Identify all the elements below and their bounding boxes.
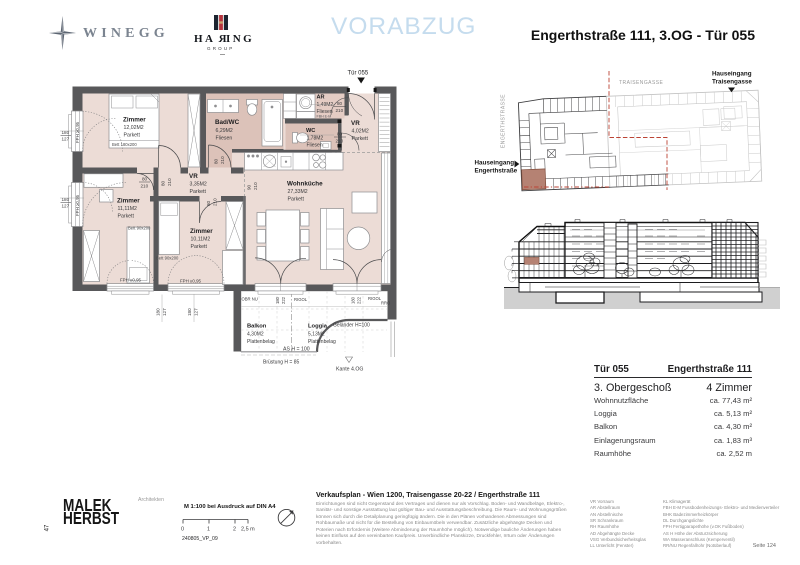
svg-text:222: 222 (357, 296, 362, 304)
svg-text:80: 80 (161, 180, 166, 186)
svg-text:Wohnküche: Wohnküche (287, 181, 323, 188)
svg-text:Engerthstraße: Engerthstraße (475, 168, 518, 175)
svg-text:6,29M2: 6,29M2 (216, 128, 233, 134)
svg-text:VR: VR (189, 173, 198, 180)
svg-text:Parkett: Parkett (124, 133, 141, 139)
svg-text:2: 2 (233, 527, 236, 533)
svg-text:Loggia: Loggia (308, 324, 328, 330)
svg-text:Parkett: Parkett (191, 244, 208, 250)
svg-text:180: 180 (187, 308, 192, 316)
svg-text:180: 180 (62, 197, 70, 202)
svg-text:127: 127 (62, 137, 70, 142)
svg-text:Balkon: Balkon (247, 324, 267, 330)
svg-text:TRAISENGASSE: TRAISENGASSE (619, 80, 664, 86)
svg-text:1: 1 (207, 527, 210, 533)
svg-text:FPH ≥0,95: FPH ≥0,95 (75, 194, 80, 216)
svg-text:Bett 90x200: Bett 90x200 (156, 256, 179, 261)
svg-text:10,11M2: 10,11M2 (191, 237, 211, 243)
svg-text:ENGERTHSTRASSE: ENGERTHSTRASSE (501, 94, 507, 148)
svg-text:210: 210 (220, 156, 225, 164)
svg-text:210: 210 (336, 139, 344, 144)
svg-text:Brüstung H = 85: Brüstung H = 85 (263, 360, 299, 366)
svg-text:Fliesen: Fliesen (307, 143, 323, 149)
svg-text:Fliesen: Fliesen (216, 136, 233, 142)
svg-text:FBH E-M: FBH E-M (317, 114, 332, 118)
svg-text:Bad/WC: Bad/WC (215, 119, 240, 126)
svg-text:RIGOL: RIGOL (368, 296, 382, 301)
svg-text:Parkett: Parkett (352, 136, 369, 142)
svg-text:Parkett: Parkett (190, 189, 207, 195)
svg-text:4,30M2: 4,30M2 (247, 332, 264, 338)
svg-text:0: 0 (181, 527, 184, 533)
svg-text:4,02M2: 4,02M2 (352, 129, 369, 135)
svg-text:AR: AR (317, 95, 325, 101)
svg-text:Plattenbelag: Plattenbelag (308, 339, 336, 345)
svg-text:Plattenbelag: Plattenbelag (247, 339, 275, 345)
svg-text:RRO: RRO (381, 301, 391, 306)
svg-text:FPH ≥0,95: FPH ≥0,95 (75, 121, 80, 143)
svg-text:Hauseingang: Hauseingang (475, 160, 515, 167)
svg-text:127: 127 (62, 204, 70, 209)
svg-text:Kante 4.OG: Kante 4.OG (336, 367, 363, 373)
svg-text:2,5 m: 2,5 m (241, 527, 255, 533)
svg-text:27,33M2: 27,33M2 (288, 189, 308, 195)
svg-text:1,78M2: 1,78M2 (307, 136, 324, 142)
svg-text:RIGOL: RIGOL (294, 297, 308, 302)
svg-text:127: 127 (194, 308, 199, 316)
svg-text:FPH ≥0,95: FPH ≥0,95 (120, 278, 142, 283)
svg-text:Zimmer: Zimmer (117, 198, 140, 205)
svg-text:1,49M2: 1,49M2 (317, 102, 334, 108)
svg-text:11,11M2: 11,11M2 (118, 206, 138, 212)
svg-text:210: 210 (167, 178, 172, 186)
svg-text:Zimmer: Zimmer (190, 228, 213, 235)
svg-text:AS H = 100: AS H = 100 (283, 347, 310, 353)
svg-text:80: 80 (142, 177, 148, 182)
svg-text:127: 127 (162, 308, 167, 316)
svg-text:Parkett: Parkett (118, 214, 135, 220)
svg-text:12,02M2: 12,02M2 (124, 125, 144, 131)
svg-text:180: 180 (62, 130, 70, 135)
svg-text:5,13M2: 5,13M2 (308, 332, 325, 338)
svg-text:Bett 90x200: Bett 90x200 (128, 226, 151, 231)
svg-text:3,35M2: 3,35M2 (190, 182, 207, 188)
svg-text:Geländer H=100: Geländer H=100 (333, 323, 370, 329)
svg-text:WC: WC (306, 128, 315, 134)
svg-text:180: 180 (275, 296, 280, 304)
svg-text:Zimmer: Zimmer (123, 117, 146, 124)
svg-text:180: 180 (156, 308, 161, 316)
svg-text:80: 80 (337, 101, 343, 106)
svg-text:210: 210 (213, 198, 218, 206)
svg-text:180: 180 (351, 296, 356, 304)
svg-text:80: 80 (337, 132, 343, 137)
svg-text:Bett 180x200: Bett 180x200 (112, 142, 137, 147)
svg-text:VR: VR (351, 120, 360, 127)
svg-text:210: 210 (336, 108, 344, 113)
svg-text:80: 80 (214, 158, 219, 164)
svg-text:210: 210 (141, 184, 149, 189)
svg-text:210: 210 (253, 182, 258, 190)
svg-text:Hauseingang: Hauseingang (712, 71, 752, 78)
svg-text:FPH ≥0,95: FPH ≥0,95 (180, 279, 202, 284)
svg-text:222: 222 (281, 296, 286, 304)
svg-text:Traisengasse: Traisengasse (712, 79, 752, 86)
svg-text:90: 90 (247, 184, 252, 190)
svg-text:Parkett: Parkett (288, 197, 305, 203)
svg-text:OBR NU: OBR NU (242, 297, 258, 302)
svg-text:Tür 055: Tür 055 (348, 71, 369, 77)
svg-text:80: 80 (206, 200, 211, 206)
